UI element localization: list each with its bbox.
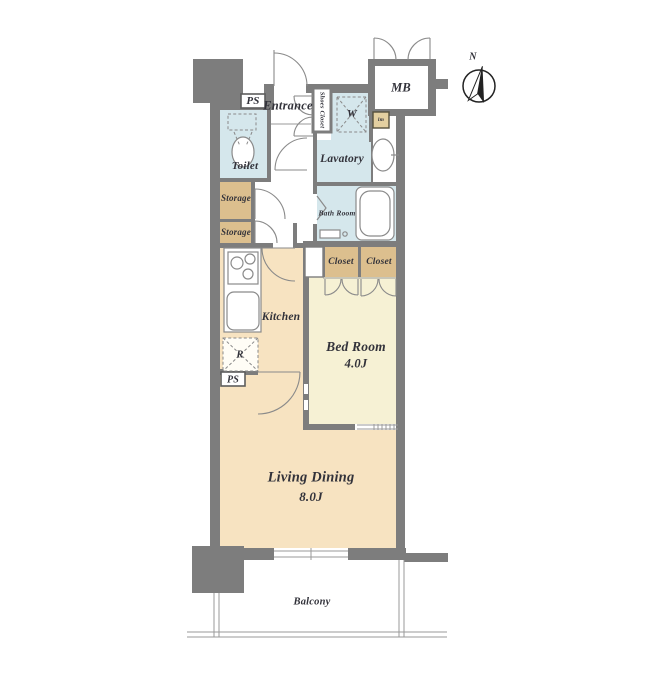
water-heater-label: lm [378, 117, 384, 123]
compass-icon [463, 65, 495, 103]
bath-room-label: Bath Room [318, 209, 355, 218]
kitchen-label: Kitchen [262, 311, 300, 323]
pipe-space-top-label: PS [246, 95, 259, 107]
entrance-label: Entrance [263, 99, 313, 114]
meter-box-label: MB [391, 81, 411, 96]
hallway-door [275, 138, 307, 170]
washbasin [372, 139, 399, 171]
storage-doors [255, 189, 285, 243]
shoes-closet-label: Shoes Closet [319, 92, 326, 129]
sink [227, 292, 259, 330]
bathtub [356, 187, 394, 240]
living-dining-label: Living Dining [268, 470, 355, 487]
stove [228, 252, 258, 284]
living-dining-size: 8.0J [299, 489, 323, 505]
washer-label: W [347, 108, 357, 120]
refrigerator-label: R [236, 350, 243, 361]
meter-box-doors [374, 38, 430, 60]
lavatory-label: Lavatory [320, 153, 364, 165]
bed-room-size: 4.0J [345, 357, 368, 372]
balcony-label: Balcony [294, 597, 331, 608]
storage-lower-label: Storage [221, 227, 251, 237]
entrance-door [274, 50, 307, 86]
pipe-space-bottom-label: PS [227, 375, 239, 386]
storage-upper-label: Storage [221, 193, 251, 203]
compass-north-label: N [469, 52, 476, 63]
closet-right-label: Closet [366, 257, 391, 267]
duct-box [305, 247, 323, 277]
bed-room-label: Bed Room [326, 339, 386, 355]
floor-plan: PS Entrance Shoes Closet W MB lm Toilet … [0, 0, 646, 676]
closet-left-label: Closet [328, 257, 353, 267]
toilet-label: Toilet [232, 160, 258, 172]
